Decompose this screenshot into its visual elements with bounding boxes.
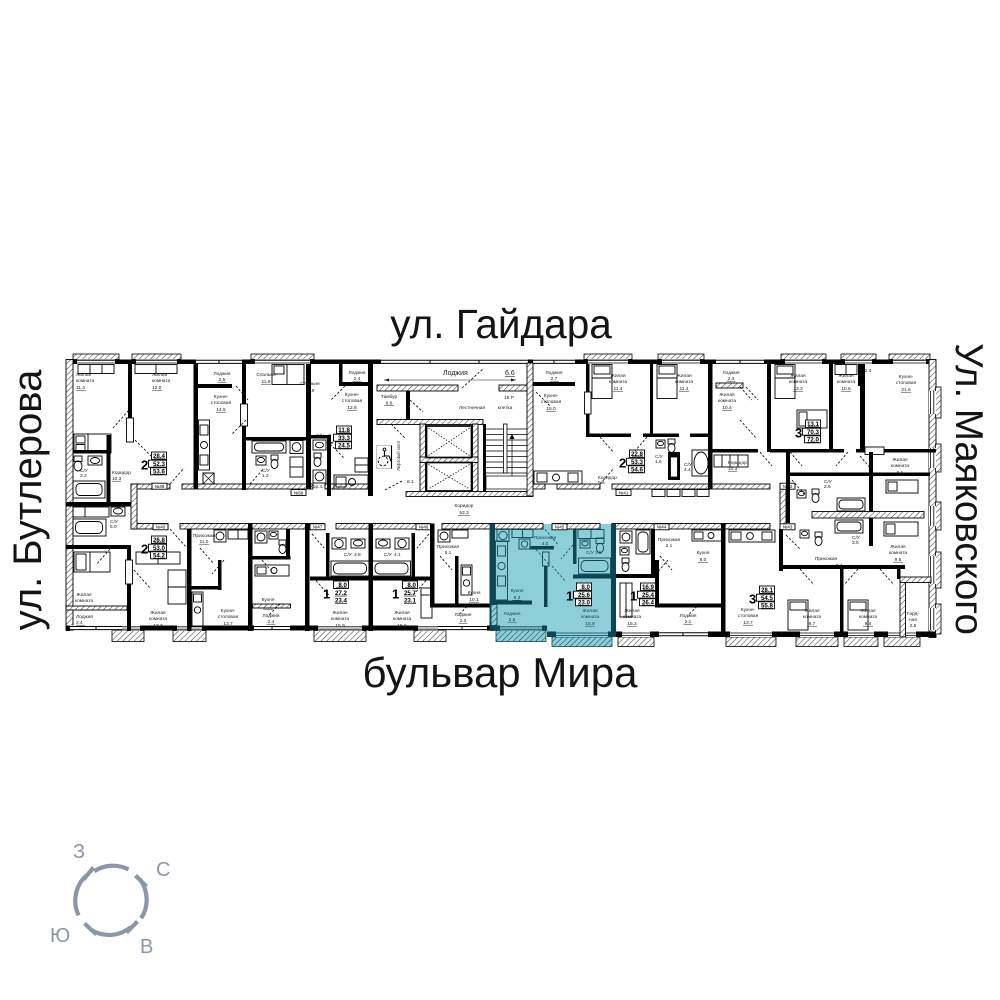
svg-text:Гард-: Гард- xyxy=(907,611,919,617)
svg-text:Тамбур: Тамбур xyxy=(381,394,398,400)
svg-text:3: 3 xyxy=(795,426,802,441)
svg-text:Кухня-: Кухня- xyxy=(899,374,914,380)
svg-text:Лоджия: Лоджия xyxy=(76,614,93,620)
svg-text:3.5: 3.5 xyxy=(852,540,859,546)
svg-text:№44: №44 xyxy=(657,525,667,530)
svg-text:Прихожая: Прихожая xyxy=(534,535,557,541)
svg-text:3.8: 3.8 xyxy=(354,552,361,558)
svg-text:комната: комната xyxy=(837,380,855,385)
svg-text:3.2: 3.2 xyxy=(80,473,87,479)
svg-text:Лоджия: Лоджия xyxy=(214,371,231,377)
svg-text:Кухня-: Кухня- xyxy=(544,393,559,399)
svg-text:комната: комната xyxy=(803,615,821,620)
svg-text:Лоджия: Лоджия xyxy=(680,613,697,619)
svg-text:Коридор: Коридор xyxy=(455,503,474,509)
svg-text:№43: №43 xyxy=(783,525,793,530)
svg-text:Коридор: Коридор xyxy=(112,470,131,476)
svg-text:В: В xyxy=(140,936,153,958)
svg-text:комната: комната xyxy=(393,617,411,622)
svg-text:2.1: 2.1 xyxy=(666,543,673,549)
svg-text:комната: комната xyxy=(718,399,736,404)
svg-text:комната: комната xyxy=(152,379,170,384)
svg-text:Прихожая: Прихожая xyxy=(193,533,216,539)
svg-text:столовая: столовая xyxy=(211,401,232,406)
svg-text:3.5: 3.5 xyxy=(595,550,602,556)
svg-text:Жилая: Жилая xyxy=(332,610,348,616)
svg-text:3: 3 xyxy=(749,592,756,607)
svg-text:13.3: 13.3 xyxy=(153,623,163,629)
svg-text:С/У: С/У xyxy=(316,433,325,439)
svg-text:2: 2 xyxy=(141,458,148,473)
svg-text:Жилая: Жилая xyxy=(582,608,598,614)
svg-text:Лоджия: Лоджия xyxy=(443,370,468,377)
svg-text:Жилая: Жилая xyxy=(676,373,692,379)
svg-text:2.6: 2.6 xyxy=(824,484,831,490)
svg-text:№58: №58 xyxy=(294,490,304,495)
svg-text:15.9: 15.9 xyxy=(335,623,345,629)
svg-text:5.0: 5.0 xyxy=(110,524,117,530)
svg-text:Кухня: Кухня xyxy=(262,597,275,603)
svg-text:Ул. Маяковского: Ул. Маяковского xyxy=(947,343,990,635)
svg-text:Лоджия: Лоджия xyxy=(723,370,740,376)
svg-text:4.4: 4.4 xyxy=(684,467,691,473)
svg-text:ул. Гайдара: ул. Гайдара xyxy=(390,301,612,347)
svg-text:Лоджия: Лоджия xyxy=(263,613,280,619)
svg-text:Лестничная: Лестничная xyxy=(459,405,486,411)
svg-text:С/У: С/У xyxy=(344,552,353,558)
svg-text:8.1: 8.1 xyxy=(407,479,414,485)
svg-text:№45: №45 xyxy=(555,525,565,530)
svg-text:комната: комната xyxy=(75,599,93,604)
svg-text:С/У: С/У xyxy=(384,552,393,558)
svg-text:С: С xyxy=(156,859,170,881)
svg-text:1.6: 1.6 xyxy=(655,459,662,465)
svg-text:Прихожая: Прихожая xyxy=(815,556,838,562)
svg-text:7.4: 7.4 xyxy=(836,563,843,569)
svg-text:5.5: 5.5 xyxy=(598,480,605,486)
svg-text:бульвар Мира: бульвар Мира xyxy=(363,649,639,696)
svg-text:комната: комната xyxy=(889,551,907,556)
svg-text:Кухня: Кухня xyxy=(511,588,524,594)
svg-text:11.9: 11.9 xyxy=(306,388,315,394)
svg-text:столовая: столовая xyxy=(541,400,562,405)
svg-text:Прихожая: Прихожая xyxy=(658,537,681,543)
svg-text:1: 1 xyxy=(326,432,333,447)
svg-text:1: 1 xyxy=(566,589,573,604)
svg-text:ул. Бутлерова: ул. Бутлерова xyxy=(6,369,50,630)
svg-text:Лифтовой холл: Лифтовой холл xyxy=(396,441,401,471)
svg-text:Лоджия: Лоджия xyxy=(546,370,563,376)
svg-text:Лоджия: Лоджия xyxy=(349,370,366,376)
svg-text:2.4: 2.4 xyxy=(865,368,872,374)
svg-text:Жилая: Жилая xyxy=(719,392,735,398)
svg-text:№41: №41 xyxy=(619,490,629,495)
svg-text:Жилая: Жилая xyxy=(76,592,92,598)
svg-text:комната: комната xyxy=(789,380,807,385)
svg-text:столовая: столовая xyxy=(896,381,917,386)
svg-text:1.2: 1.2 xyxy=(262,473,269,479)
svg-text:Лоджия: Лоджия xyxy=(455,612,472,618)
svg-text:комната: комната xyxy=(675,380,693,385)
svg-text:Жилая: Жилая xyxy=(890,544,906,550)
svg-text:1: 1 xyxy=(392,587,399,602)
svg-text:клетка: клетка xyxy=(498,406,513,411)
svg-text:столовая: столовая xyxy=(218,615,239,620)
svg-text:ная: ная xyxy=(909,618,917,623)
svg-text:Кухня-: Кухня- xyxy=(741,607,756,613)
svg-text:Кор.4.7: Кор.4.7 xyxy=(310,484,326,490)
svg-text:2: 2 xyxy=(141,542,148,557)
svg-text:Спальня: Спальня xyxy=(300,381,320,387)
svg-text:Спальня: Спальня xyxy=(256,372,276,378)
svg-text:№48: №48 xyxy=(155,484,165,489)
svg-text:Кухня-: Кухня- xyxy=(214,394,229,400)
svg-text:Жилая: Жилая xyxy=(804,608,820,614)
svg-text:З: З xyxy=(73,841,85,863)
svg-text:№47: №47 xyxy=(313,525,323,530)
svg-text:15 Р: 15 Р xyxy=(504,395,514,401)
svg-text:столовая: столовая xyxy=(342,399,363,404)
svg-text:Жилая: Жилая xyxy=(152,372,168,378)
svg-text:6.6: 6.6 xyxy=(505,370,515,377)
svg-text:4.1: 4.1 xyxy=(394,552,401,558)
svg-text:Ю: Ю xyxy=(50,925,70,947)
svg-text:комната: комната xyxy=(76,379,94,384)
svg-text:№40: №40 xyxy=(156,525,166,530)
svg-text:1: 1 xyxy=(630,589,637,604)
svg-text:комната: комната xyxy=(581,615,599,620)
svg-text:Кухня-: Кухня- xyxy=(345,392,360,398)
svg-text:комната: комната xyxy=(331,617,349,622)
svg-text:Жилая: Жилая xyxy=(610,373,626,379)
svg-text:15.9: 15.9 xyxy=(397,623,407,629)
svg-text:5.1: 5.1 xyxy=(445,550,452,556)
svg-text:комната: комната xyxy=(891,464,909,469)
svg-text:2.5: 2.5 xyxy=(910,623,917,629)
svg-text:Кухня-: Кухня- xyxy=(221,608,236,614)
svg-text:Жилая: Жилая xyxy=(394,610,410,616)
svg-text:Лоджия: Лоджия xyxy=(504,611,521,617)
svg-text:комната: комната xyxy=(149,617,167,622)
svg-text:Кухня: Кухня xyxy=(697,550,710,556)
svg-text:1: 1 xyxy=(323,587,330,602)
svg-text:Жилая: Жилая xyxy=(892,457,908,463)
svg-text:столовая: столовая xyxy=(738,614,759,619)
svg-text:Прихожая: Прихожая xyxy=(437,544,460,550)
svg-text:Жилая: Жилая xyxy=(150,610,166,616)
svg-text:№46: №46 xyxy=(419,525,429,530)
svg-text:С/У: С/У xyxy=(586,550,595,556)
svg-text:2: 2 xyxy=(619,456,626,471)
